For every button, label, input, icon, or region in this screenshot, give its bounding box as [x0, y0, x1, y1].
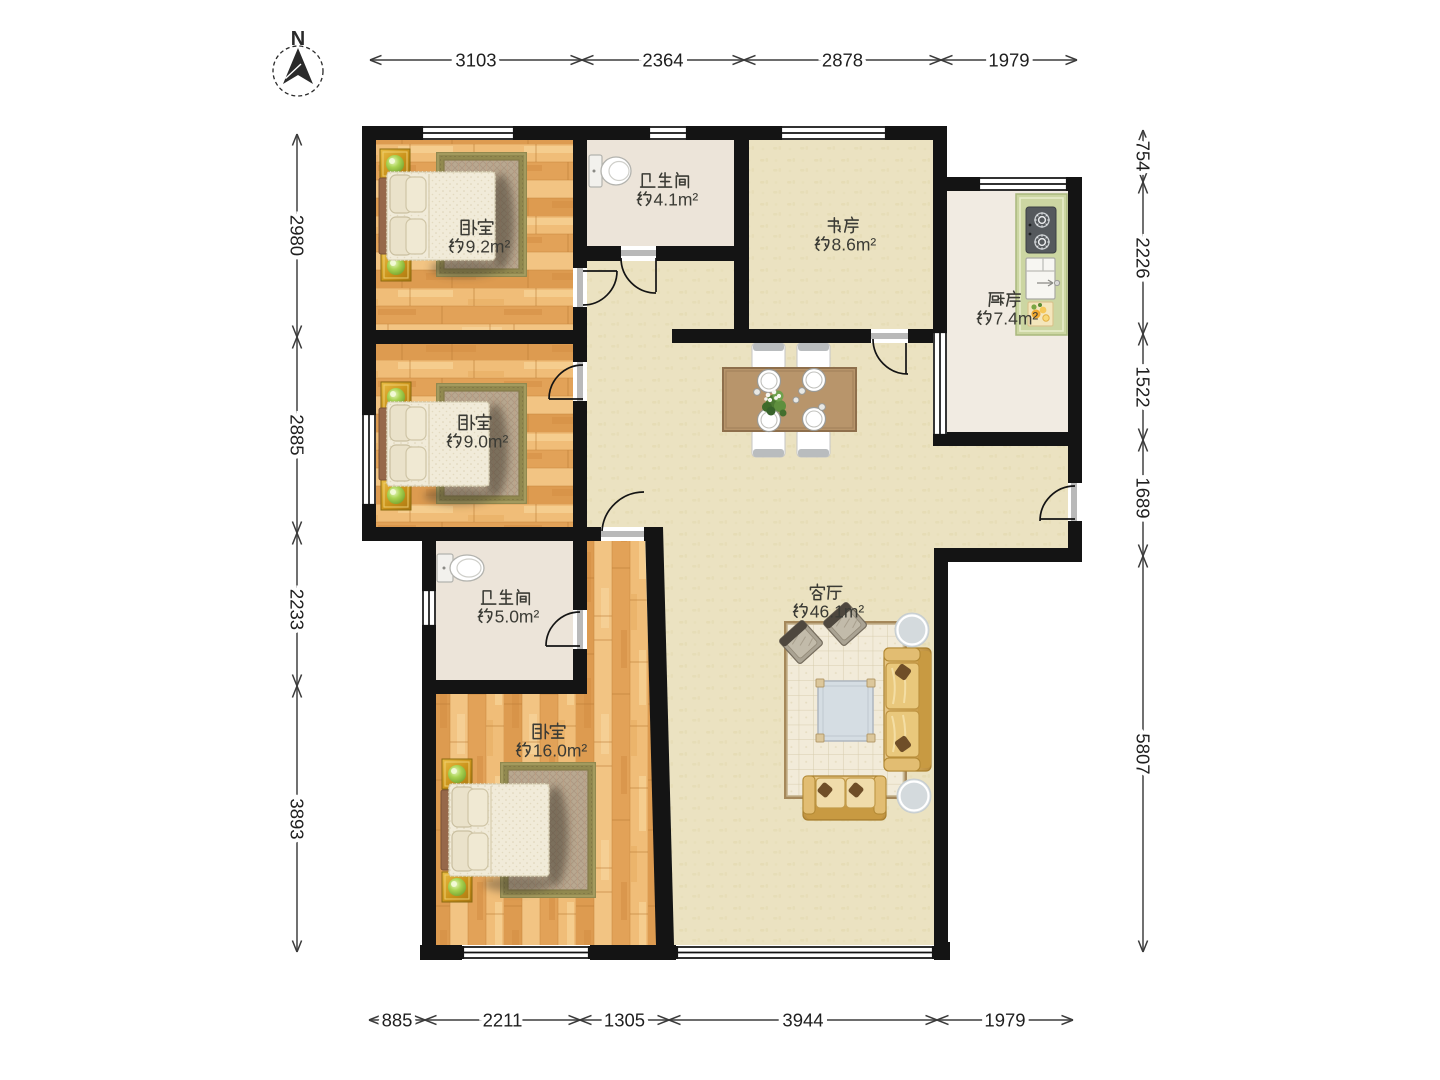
svg-text:3893: 3893	[286, 798, 307, 839]
svg-text:2211: 2211	[483, 1010, 523, 1031]
svg-text:7.4m²: 7.4m²	[994, 309, 1039, 329]
svg-text:2226: 2226	[1132, 237, 1153, 278]
svg-text:3103: 3103	[455, 50, 496, 71]
svg-text:5807: 5807	[1132, 733, 1153, 774]
svg-text:885: 885	[382, 1010, 413, 1031]
svg-text:2885: 2885	[286, 414, 307, 455]
svg-text:1979: 1979	[988, 50, 1029, 71]
svg-text:9.2m²: 9.2m²	[466, 237, 511, 257]
svg-text:754: 754	[1132, 141, 1153, 172]
svg-text:8.6m²: 8.6m²	[832, 235, 877, 255]
svg-text:1689: 1689	[1132, 477, 1153, 518]
svg-text:1305: 1305	[604, 1010, 645, 1031]
svg-text:16.0m²: 16.0m²	[533, 741, 588, 761]
svg-text:2980: 2980	[286, 215, 307, 256]
svg-text:1522: 1522	[1132, 366, 1153, 407]
svg-text:3944: 3944	[782, 1010, 823, 1031]
svg-text:46.1m²: 46.1m²	[810, 602, 865, 622]
svg-text:4.1m²: 4.1m²	[654, 190, 699, 210]
svg-text:2878: 2878	[822, 50, 863, 71]
svg-text:2364: 2364	[642, 50, 683, 71]
svg-text:5.0m²: 5.0m²	[495, 607, 540, 627]
svg-text:2233: 2233	[286, 589, 307, 630]
svg-text:9.0m²: 9.0m²	[464, 432, 509, 452]
svg-text:1979: 1979	[984, 1010, 1025, 1031]
